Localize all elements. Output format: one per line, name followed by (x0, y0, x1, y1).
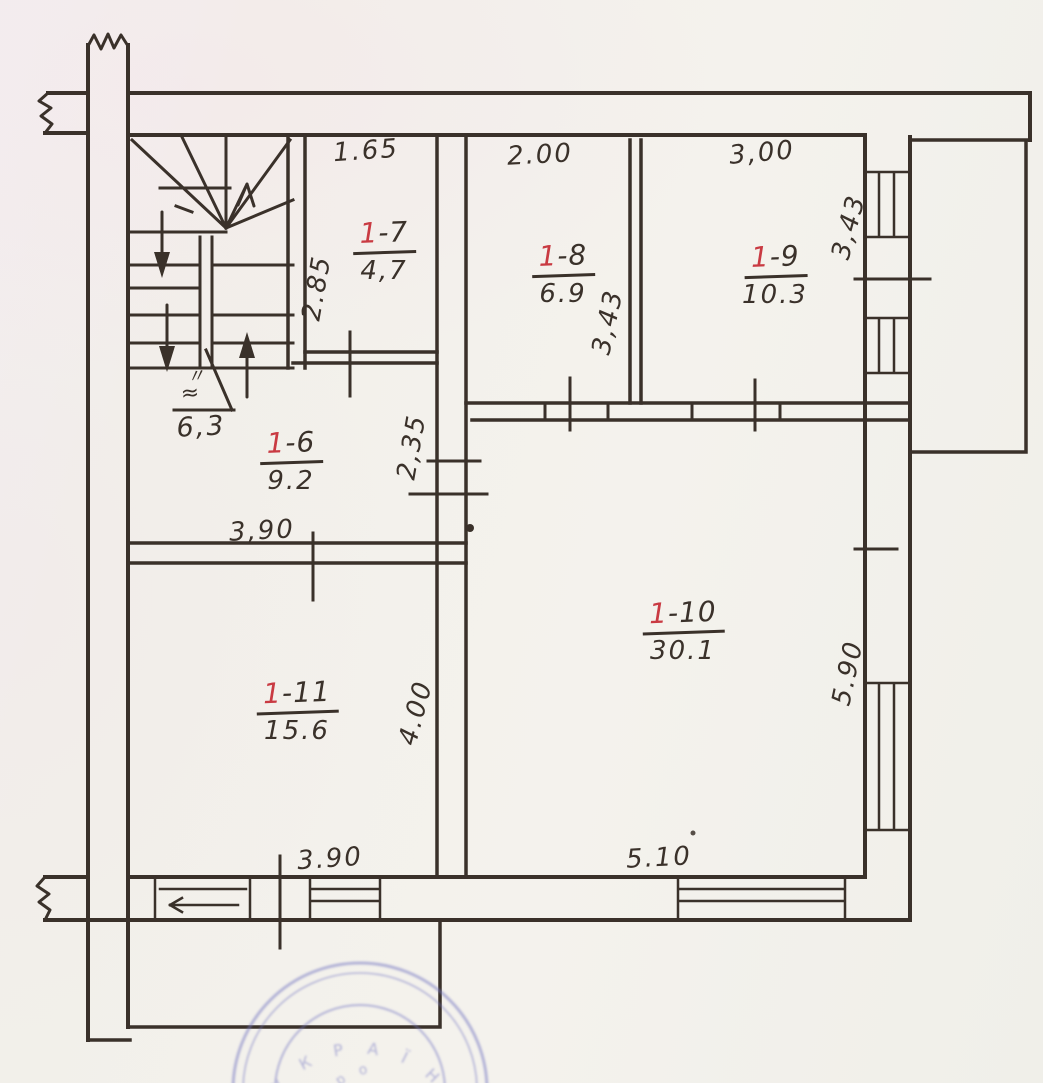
room-number-rest: -6 (285, 425, 316, 459)
window-right-a (865, 172, 910, 237)
window-bottom-1 (155, 877, 250, 920)
room-label-1-9: 1-9 10.3 (742, 243, 808, 311)
room-number-rest: -10 (667, 595, 717, 630)
room-area-1-8: 6.9 (532, 280, 595, 310)
wall-break-symbols (37, 34, 128, 920)
window-right-b (865, 318, 910, 373)
room-area-1-7: 4,7 (353, 257, 416, 287)
window-right-c (865, 683, 910, 830)
jamb-r8-door (545, 403, 608, 420)
wall-r8-r9 (630, 140, 641, 403)
door-ticks (280, 279, 930, 948)
stairwell-right-wall (288, 135, 305, 368)
room-area-1-6: 9.2 (260, 467, 323, 497)
room-number-rest: -9 (769, 239, 800, 273)
stair-small-tick (176, 206, 192, 212)
dim-r10-bottom: 5.10 (625, 843, 692, 872)
room-number-red-part: 1 (649, 597, 669, 631)
room-number-rest: -7 (378, 215, 409, 249)
dim-r6-bottom: 3,90 (228, 516, 295, 545)
top-wall-outer (48, 93, 1030, 140)
window-bottom-1-arrow (170, 898, 238, 912)
round-stamp: У К Р А Ї Н б ю р о (233, 963, 487, 1083)
jamb-r9-door (692, 403, 780, 420)
room-number-1-8: 1-8 (531, 241, 595, 278)
stair-stringer (200, 237, 212, 368)
arrow-up-1-head (239, 332, 255, 358)
room-label-1-6: 1-6 9.2 (260, 429, 323, 497)
window-bottom-2 (310, 877, 380, 920)
staircase (130, 137, 293, 410)
top-wall-inner (45, 133, 865, 135)
dim-r7-top: 1.65 (332, 136, 400, 167)
break-top-column (88, 34, 128, 49)
dim-r11-bottom: 3.90 (296, 844, 364, 875)
stair-area-value: 6,3 (176, 412, 226, 442)
stair-treads-left (130, 265, 200, 343)
stair-approx-sign: ≈ (180, 382, 200, 406)
room-number-red-part: 1 (750, 240, 770, 274)
room-number-red-part: 1 (266, 426, 286, 460)
room-label-1-8: 1-8 6.9 (532, 242, 595, 310)
room-number-rest: -8 (557, 238, 588, 272)
wall-r6-r11 (128, 543, 466, 563)
room-label-1-11: 1-11 15.6 (256, 679, 338, 747)
wall-top-rooms-r10 (466, 403, 908, 420)
break-left-top-stub (39, 93, 52, 133)
stair-treads-right (212, 265, 293, 343)
room-number-red-part: 1 (538, 239, 558, 273)
bay-projection (912, 140, 1030, 452)
room-number-1-11: 1-11 (256, 678, 339, 716)
ink-dot (466, 524, 474, 532)
room-area-1-11: 15.6 (256, 717, 338, 747)
room-label-1-10: 1-10 30.1 (642, 599, 724, 667)
room-number-1-9: 1-9 (743, 242, 807, 279)
ink-speck (691, 831, 696, 836)
room-area-1-10: 30.1 (642, 637, 724, 667)
room-number-1-10: 1-10 (642, 598, 725, 636)
room-number-1-6: 1-6 (259, 428, 323, 465)
room-number-rest: -11 (281, 675, 331, 710)
stair-winder-fan (132, 137, 293, 228)
stair-treads-upper (130, 188, 230, 232)
dim-r8-top: 2.00 (506, 140, 573, 169)
window-bottom-3 (678, 877, 845, 920)
break-left-bottom-stub (37, 877, 50, 920)
stair-arrows (154, 184, 255, 397)
room-number-red-part: 1 (263, 677, 283, 711)
wall-r7-bottom (293, 352, 437, 363)
room-area-1-9: 10.3 (742, 281, 808, 311)
floor-plan-scan: У К Р А Ї Н б ю р о 1-7 4,7 1-8 6.9 1-9 … (0, 0, 1043, 1083)
dim-r9-top: 3,00 (728, 137, 796, 169)
room-number-red-part: 1 (359, 216, 379, 250)
central-vertical-wall (437, 135, 466, 877)
room-label-1-7: 1-7 4,7 (353, 219, 416, 287)
room-number-1-7: 1-7 (352, 218, 416, 255)
